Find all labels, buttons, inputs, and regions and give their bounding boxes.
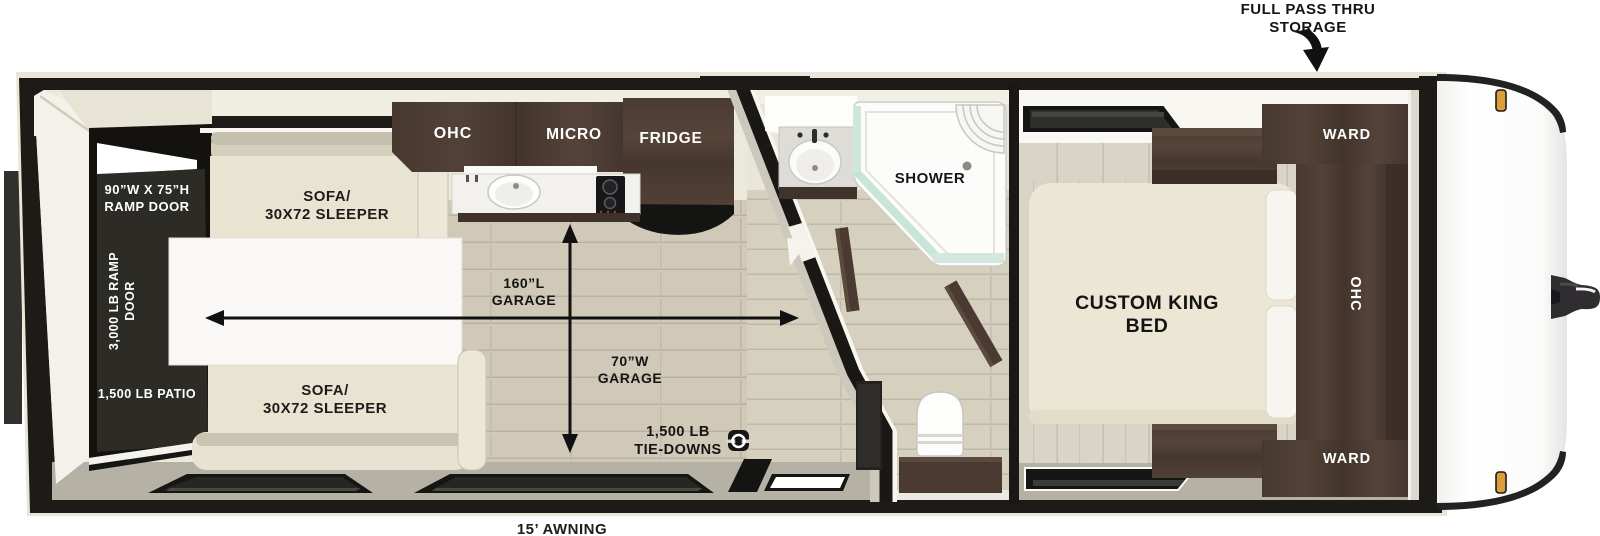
svg-text:30X72 SLEEPER: 30X72 SLEEPER xyxy=(265,206,389,223)
svg-text:SOFA/: SOFA/ xyxy=(303,188,351,205)
svg-text:FULL PASS THRU: FULL PASS THRU xyxy=(1241,1,1376,18)
svg-text:SHOWER: SHOWER xyxy=(895,170,966,187)
svg-text:CUSTOM KING: CUSTOM KING xyxy=(1075,292,1219,314)
svg-text:OHC: OHC xyxy=(1347,276,1363,311)
svg-text:30X72 SLEEPER: 30X72 SLEEPER xyxy=(263,400,387,417)
svg-text:OHC: OHC xyxy=(434,125,473,142)
svg-text:GARAGE: GARAGE xyxy=(598,370,662,386)
svg-text:160”L: 160”L xyxy=(503,275,544,291)
svg-text:GARAGE: GARAGE xyxy=(492,292,556,308)
svg-text:BED: BED xyxy=(1126,315,1169,337)
svg-text:TIE-DOWNS: TIE-DOWNS xyxy=(634,442,721,458)
svg-text:FRIDGE: FRIDGE xyxy=(639,130,702,147)
svg-text:RAMP DOOR: RAMP DOOR xyxy=(104,199,189,214)
svg-text:WARD: WARD xyxy=(1323,451,1371,467)
svg-text:1,500 LB PATIO: 1,500 LB PATIO xyxy=(98,387,196,401)
svg-text:WARD: WARD xyxy=(1323,127,1371,143)
svg-text:1,500 LB: 1,500 LB xyxy=(646,424,710,440)
svg-text:70”W: 70”W xyxy=(611,353,649,369)
svg-text:SOFA/: SOFA/ xyxy=(301,382,349,399)
svg-text:3,000 LB RAMP: 3,000 LB RAMP xyxy=(107,252,121,350)
svg-text:MICRO: MICRO xyxy=(546,126,602,143)
svg-text:DOOR: DOOR xyxy=(123,281,137,321)
svg-text:90”W X 75”H: 90”W X 75”H xyxy=(105,182,190,197)
svg-text:15’ AWNING: 15’ AWNING xyxy=(517,521,607,536)
